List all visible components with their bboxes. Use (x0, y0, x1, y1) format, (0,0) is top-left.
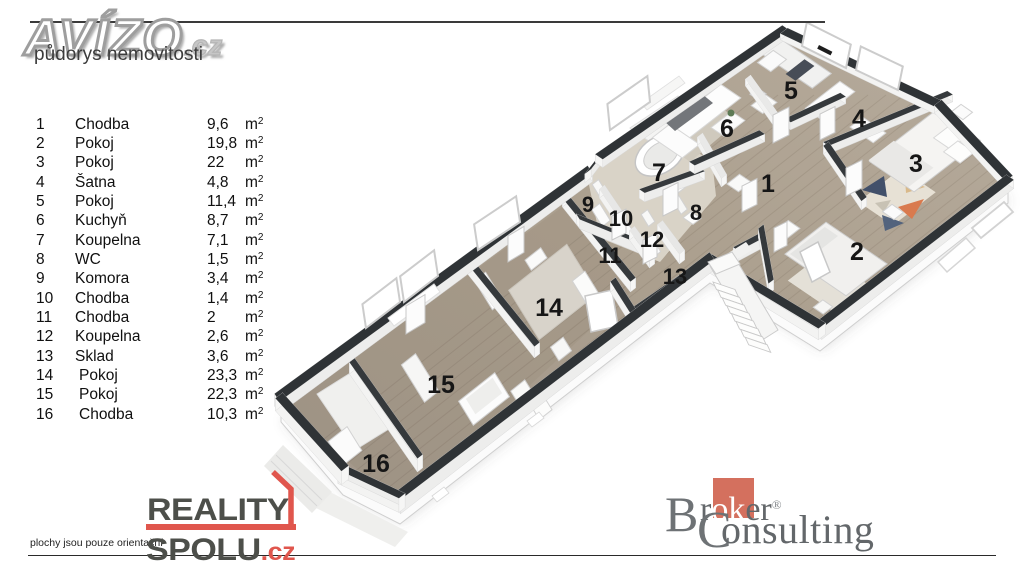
svg-text:12: 12 (640, 227, 664, 252)
svg-text:9: 9 (582, 192, 594, 217)
svg-text:16: 16 (362, 450, 390, 478)
svg-text:2: 2 (850, 238, 864, 266)
svg-text:3: 3 (909, 150, 923, 178)
svg-text:10: 10 (609, 206, 633, 231)
svg-text:7: 7 (652, 159, 666, 187)
svg-text:5: 5 (784, 77, 798, 105)
svg-text:11: 11 (598, 243, 621, 268)
svg-text:1: 1 (761, 170, 775, 198)
svg-text:6: 6 (720, 115, 734, 143)
svg-text:4: 4 (852, 105, 866, 133)
svg-text:8: 8 (690, 200, 702, 225)
svg-text:14: 14 (535, 294, 563, 322)
svg-text:15: 15 (427, 371, 455, 399)
svg-text:13: 13 (663, 264, 687, 289)
